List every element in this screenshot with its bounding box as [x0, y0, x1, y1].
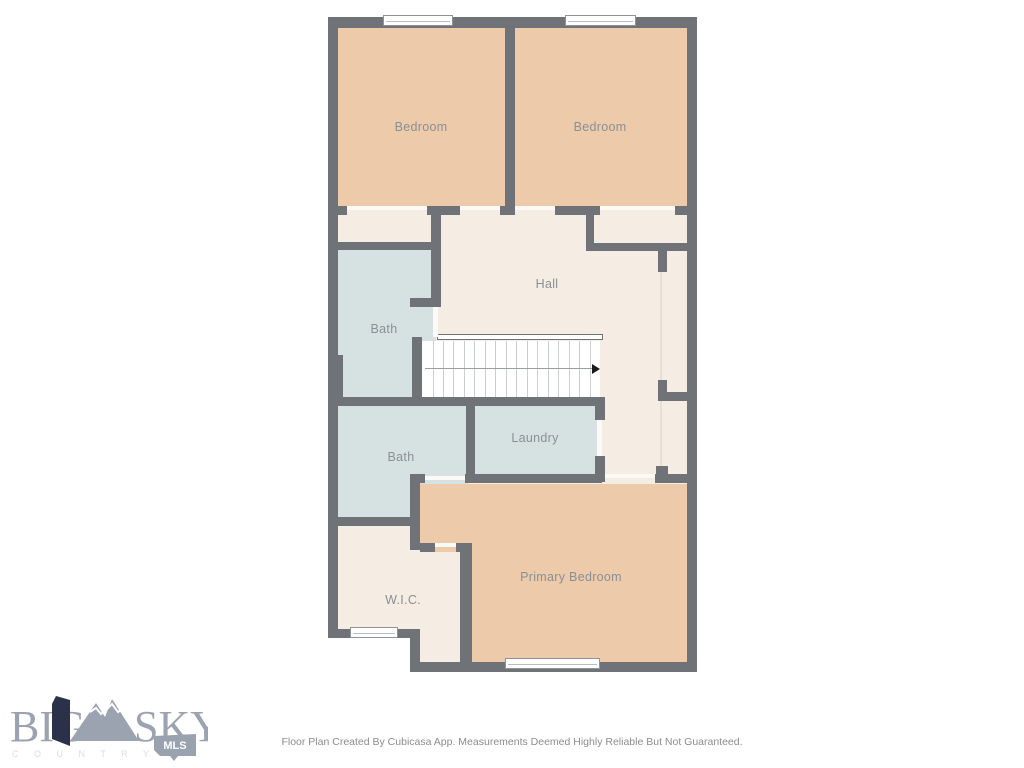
stairs-direction-arrow-icon: [592, 364, 600, 374]
window: [565, 15, 636, 26]
window: [383, 15, 453, 26]
logo-flag-icon: [52, 696, 70, 746]
window-mullion: [568, 21, 633, 22]
stair-tread-line: [569, 341, 570, 400]
stair-tread-line: [579, 341, 580, 400]
logo-graphic: BIG SKY C O U N T R Y MLS: [8, 690, 208, 764]
wall-segment: [420, 543, 435, 552]
stair-tread-line: [443, 341, 444, 400]
stair-treads: [422, 341, 600, 400]
wall-segment: [410, 298, 431, 307]
logo-subtitle-country: C O U N T R Y: [12, 749, 156, 759]
room-label-bath-2: Bath: [388, 450, 415, 464]
stair-tread-line: [548, 341, 549, 400]
wall-segment: [675, 206, 697, 215]
stair-tread-line: [495, 341, 496, 400]
room-label-primary-bedroom: Primary Bedroom: [520, 570, 622, 584]
window: [350, 627, 398, 638]
window-mullion: [508, 664, 597, 665]
stair-tread-line: [474, 341, 475, 400]
wall-segment: [667, 392, 697, 401]
logo-word-big: BIG: [10, 702, 86, 751]
door-threshold: [597, 420, 602, 456]
stair-tread-line: [558, 341, 559, 400]
door-threshold: [460, 206, 500, 210]
wall-segment: [328, 517, 412, 526]
wall-segment: [505, 28, 515, 208]
room-label-bedroom-2: Bedroom: [574, 120, 627, 134]
window: [505, 658, 600, 669]
wall-segment: [460, 543, 472, 663]
wall-segment: [658, 251, 667, 272]
wall-segment: [410, 629, 420, 672]
wall-segment: [595, 406, 605, 420]
wall-segment: [586, 243, 697, 251]
big-sky-mls-logo: BIG SKY C O U N T R Y MLS: [8, 690, 208, 764]
door-threshold: [433, 307, 438, 337]
stair-tread-line: [506, 341, 507, 400]
room-bedroom-1: [338, 28, 505, 208]
door-threshold: [605, 474, 655, 478]
wall-segment: [328, 242, 431, 250]
floor-plan-page: Bedroom Bedroom Hall Bath Laundry Bath W…: [0, 0, 1024, 768]
wall-segment: [328, 17, 338, 638]
wall-segment: [412, 337, 422, 400]
door-threshold: [600, 206, 675, 210]
disclaimer-text: Floor Plan Created By Cubicasa App. Meas…: [281, 736, 742, 748]
room-label-bedroom-1: Bedroom: [395, 120, 448, 134]
wall-segment: [687, 17, 697, 672]
door-threshold: [435, 543, 456, 547]
stair-handrail: [437, 334, 603, 340]
door-threshold: [425, 476, 465, 480]
window-mullion: [353, 633, 395, 634]
room-label-wic: W.I.C.: [385, 593, 421, 607]
wall-segment: [431, 206, 441, 307]
wall-segment: [500, 206, 515, 215]
room-bedroom-2: [515, 28, 687, 208]
window-mullion: [386, 21, 450, 22]
room-wic-corridor: [420, 552, 460, 663]
stair-tread-line: [527, 341, 528, 400]
stair-tread-line: [453, 341, 454, 400]
wall-segment: [328, 397, 605, 406]
wall-segment: [655, 474, 697, 483]
stair-run-line: [425, 368, 592, 369]
wall-segment: [410, 474, 420, 550]
room-label-hall: Hall: [536, 277, 559, 291]
stair-tread-line: [485, 341, 486, 400]
wall-segment: [328, 355, 343, 400]
stair-tread-line: [537, 341, 538, 400]
wall-segment: [466, 406, 475, 477]
wall-segment: [465, 474, 602, 483]
wall-segment: [328, 206, 347, 215]
ceiling-change-line: [660, 251, 662, 476]
logo-badge-mls: MLS: [163, 740, 186, 752]
stair-tread-line: [590, 341, 591, 400]
stair-tread-line: [516, 341, 517, 400]
wall-segment: [656, 466, 668, 474]
room-label-bath-1: Bath: [371, 322, 398, 336]
stair-tread-line: [464, 341, 465, 400]
room-label-laundry: Laundry: [511, 431, 558, 445]
door-threshold: [515, 206, 555, 210]
wall-segment: [658, 380, 667, 401]
door-threshold: [347, 206, 427, 210]
stair-tread-line: [433, 341, 434, 400]
